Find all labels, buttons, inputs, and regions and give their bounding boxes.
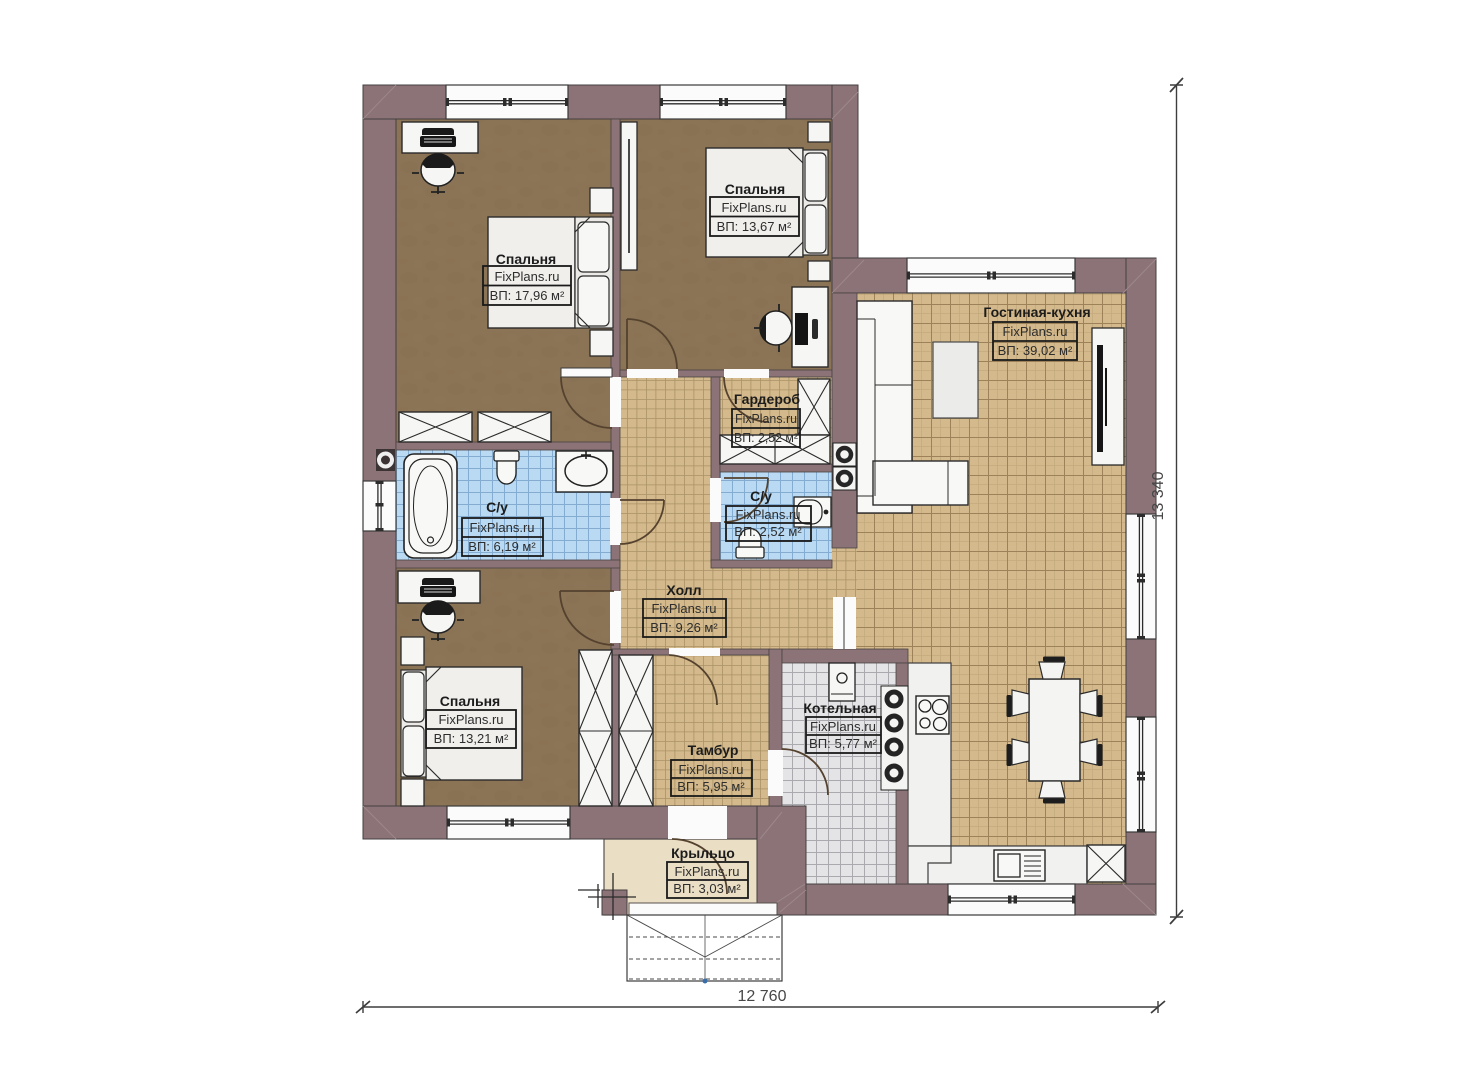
svg-text:FixPlans.ru: FixPlans.ru [735, 411, 797, 426]
svg-text:FixPlans.ru: FixPlans.ru [469, 520, 534, 535]
svg-text:Спальня: Спальня [496, 251, 556, 267]
svg-text:Спальня: Спальня [440, 693, 500, 709]
svg-text:ВП: 13,21 м²: ВП: 13,21 м² [434, 731, 509, 746]
svg-text:FixPlans.ru: FixPlans.ru [438, 712, 503, 727]
svg-text:FixPlans.ru: FixPlans.ru [674, 864, 739, 879]
svg-text:ВП: 9,26 м²: ВП: 9,26 м² [650, 620, 718, 635]
svg-text:ВП: 5,95 м²: ВП: 5,95 м² [677, 779, 745, 794]
svg-text:ВП: 39,02 м²: ВП: 39,02 м² [998, 343, 1073, 358]
svg-text:Гардероб: Гардероб [734, 391, 801, 407]
svg-text:ВП: 2,52 м²: ВП: 2,52 м² [734, 524, 802, 539]
svg-text:13 340: 13 340 [1150, 471, 1167, 520]
svg-text:FixPlans.ru: FixPlans.ru [721, 200, 786, 215]
svg-text:Тамбур: Тамбур [688, 742, 739, 758]
svg-text:Холл: Холл [666, 582, 701, 598]
svg-text:FixPlans.ru: FixPlans.ru [651, 601, 716, 616]
svg-text:С/у: С/у [486, 499, 508, 515]
svg-text:Крыльцо: Крыльцо [671, 845, 735, 861]
svg-text:Спальня: Спальня [725, 181, 785, 197]
svg-text:ВП: 5,77 м²: ВП: 5,77 м² [809, 736, 878, 751]
svg-text:FixPlans.ru: FixPlans.ru [735, 507, 800, 522]
svg-text:FixPlans.ru: FixPlans.ru [494, 269, 559, 284]
svg-text:Гостиная-кухня: Гостиная-кухня [983, 304, 1090, 320]
svg-text:FixPlans.ru: FixPlans.ru [1002, 324, 1067, 339]
svg-text:FixPlans.ru: FixPlans.ru [678, 762, 743, 777]
svg-text:С/у: С/у [750, 488, 772, 504]
svg-text:ВП: 3,03 м²: ВП: 3,03 м² [673, 881, 741, 896]
svg-text:ВП: 2,52 м²: ВП: 2,52 м² [734, 430, 799, 445]
svg-text:ВП: 17,96 м²: ВП: 17,96 м² [490, 288, 565, 303]
svg-text:Котельная: Котельная [803, 700, 876, 716]
svg-text:FixPlans.ru: FixPlans.ru [810, 719, 876, 734]
svg-text:12 760: 12 760 [738, 988, 787, 1005]
svg-text:ВП: 13,67 м²: ВП: 13,67 м² [717, 219, 792, 234]
svg-text:ВП: 6,19 м²: ВП: 6,19 м² [468, 539, 536, 554]
